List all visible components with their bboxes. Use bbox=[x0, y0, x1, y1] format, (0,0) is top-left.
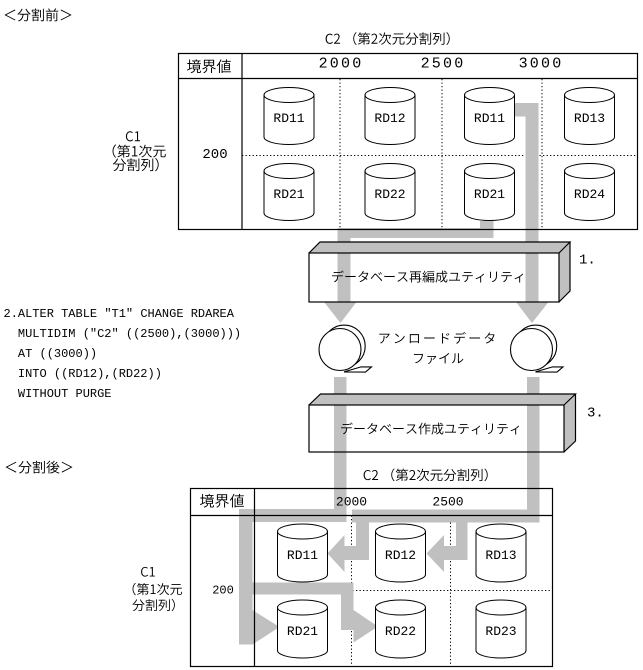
svg-text:2.ALTER TABLE "T1" CHANGE RDAR: 2.ALTER TABLE "T1" CHANGE RDAREA bbox=[4, 307, 235, 321]
svg-text:RD12: RD12 bbox=[374, 111, 405, 126]
svg-text:MULTIDIM ("C2" ((2500),(3000)): MULTIDIM ("C2" ((2500),(3000))) bbox=[18, 327, 241, 341]
svg-text:RD12: RD12 bbox=[385, 548, 416, 563]
svg-text:AT ((3000)): AT ((3000)) bbox=[18, 347, 97, 361]
svg-text:RD21: RD21 bbox=[287, 624, 318, 639]
svg-text:RD22: RD22 bbox=[374, 187, 405, 202]
svg-text:2000: 2000 bbox=[319, 56, 364, 73]
svg-text:2000: 2000 bbox=[336, 495, 367, 510]
svg-text:200: 200 bbox=[202, 147, 227, 163]
svg-text:RD11: RD11 bbox=[287, 548, 318, 563]
svg-text:200: 200 bbox=[212, 584, 234, 598]
svg-text:WITHOUT PURGE: WITHOUT PURGE bbox=[18, 387, 112, 401]
svg-text:3000: 3000 bbox=[519, 56, 564, 73]
svg-text:RD22: RD22 bbox=[385, 624, 416, 639]
svg-text:RD13: RD13 bbox=[574, 111, 605, 126]
svg-text:2500: 2500 bbox=[432, 495, 463, 510]
svg-text:2500: 2500 bbox=[421, 56, 466, 73]
svg-text:RD21: RD21 bbox=[474, 187, 505, 202]
svg-text:RD24: RD24 bbox=[574, 187, 605, 202]
svg-text:RD13: RD13 bbox=[485, 548, 516, 563]
svg-text:1.: 1. bbox=[579, 253, 596, 269]
svg-text:INTO ((RD12),(RD22)): INTO ((RD12),(RD22)) bbox=[18, 367, 162, 381]
svg-text:RD11: RD11 bbox=[273, 111, 304, 126]
svg-text:RD21: RD21 bbox=[273, 187, 304, 202]
svg-text:RD11: RD11 bbox=[474, 111, 505, 126]
svg-text:3.: 3. bbox=[587, 406, 604, 422]
svg-text:RD23: RD23 bbox=[485, 624, 516, 639]
